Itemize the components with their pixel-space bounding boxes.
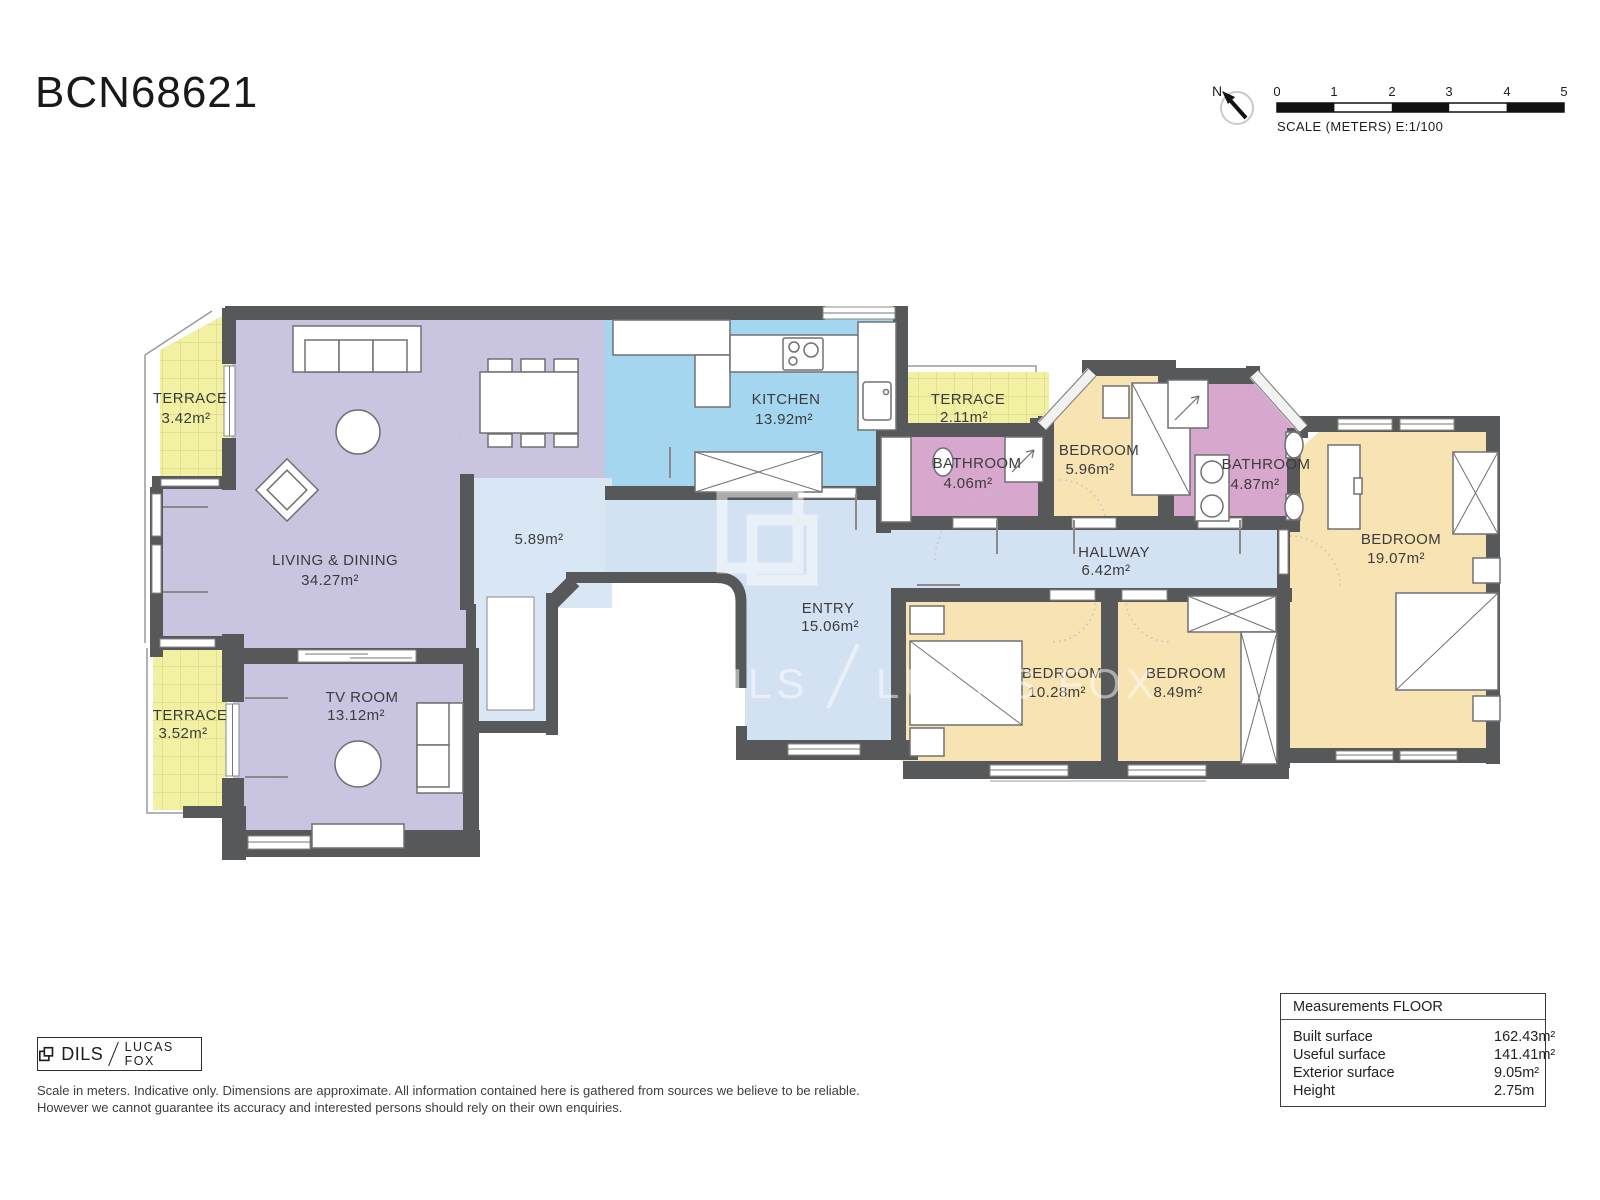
measurement-label: Useful surface [1293, 1047, 1386, 1063]
floorplan-page: BCN68621 [0, 0, 1600, 1200]
label-bedroom596-area: 5.96m² [1065, 461, 1114, 478]
label-terrace2-area: 2.11m² [940, 409, 988, 426]
label-tvroom-name: TV ROOM [326, 689, 399, 706]
scale-tick-0: 0 [1273, 84, 1280, 99]
label-bathroom2-name: BATHROOM [1222, 456, 1311, 473]
scale-caption: SCALE (METERS) E:1/100 [1277, 119, 1443, 134]
dils-logo-icon [38, 1045, 55, 1064]
label-hallway-area: 6.42m² [1081, 562, 1130, 579]
measurement-row: Built surface 162.43m² [1293, 1028, 1533, 1046]
watermark-lucasfox: LUCAS FOX [876, 660, 1159, 707]
measurement-row: Exterior surface 9.05m² [1293, 1064, 1533, 1082]
scale-tick-3: 3 [1445, 84, 1452, 99]
sofa-living [293, 326, 421, 372]
measurement-value: 162.43m² [1494, 1028, 1555, 1046]
label-terrace1-name: TERRACE [153, 390, 227, 407]
scale-tick-2: 2 [1388, 84, 1395, 99]
measurement-value: 2.75m [1494, 1082, 1534, 1100]
label-bedroom596-name: BEDROOM [1059, 442, 1139, 459]
label-living-name: LIVING & DINING [272, 552, 398, 569]
label-kitchen-area: 13.92m² [755, 411, 813, 428]
measurement-label: Exterior surface [1293, 1065, 1395, 1081]
north-arrow: N [1212, 83, 1253, 124]
label-tvroom-area: 13.12m² [327, 707, 385, 724]
dining-table [480, 359, 578, 447]
label-bathroom2-area: 4.87m² [1230, 476, 1279, 493]
measurement-label: Built surface [1293, 1029, 1373, 1045]
logo-text-lucasfox: LUCAS FOX [125, 1040, 201, 1068]
logo-text-dils: DILS [61, 1044, 103, 1065]
label-entry-name: ENTRY [802, 600, 855, 617]
label-terrace3-area: 3.52m² [158, 725, 207, 742]
scale-tick-4: 4 [1503, 84, 1510, 99]
coffee-table-tvroom [335, 741, 381, 787]
label-hallway-name: HALLWAY [1078, 544, 1150, 561]
north-label: N [1212, 83, 1222, 99]
disclaimer-line-2: However we cannot guarantee its accuracy… [37, 1099, 860, 1116]
label-terrace2-name: TERRACE [931, 391, 1005, 408]
measurements-title: Measurements FLOOR [1281, 994, 1545, 1020]
label-terrace3-name: TERRACE [153, 707, 227, 724]
watermark-dils: DILS [696, 660, 809, 707]
label-terrace1-area: 3.42m² [161, 410, 210, 427]
tv-unit [312, 824, 404, 848]
page-title: BCN68621 [35, 68, 258, 118]
scale-bar: 0 1 2 3 4 5 SCALE (METERS) E:1/100 [1273, 84, 1567, 134]
label-kitchen-name: KITCHEN [752, 391, 821, 408]
agency-logo: DILS LUCAS FOX [37, 1037, 202, 1071]
measurement-label: Height [1293, 1083, 1335, 1099]
measurement-value: 9.05m² [1494, 1064, 1539, 1082]
coffee-table-living [336, 410, 380, 454]
label-living-area: 34.27m² [301, 572, 359, 589]
scale-tick-1: 1 [1330, 84, 1337, 99]
logo-slash [108, 1042, 119, 1067]
measurements-table: Measurements FLOOR Built surface 162.43m… [1280, 993, 1546, 1107]
label-bathroom1-area: 4.06m² [943, 475, 992, 492]
measurement-value: 141.41m² [1494, 1046, 1555, 1064]
label-bedroom19-name: BEDROOM [1361, 531, 1441, 548]
measurement-row: Height 2.75m [1293, 1082, 1533, 1100]
sofa-tvroom [417, 703, 463, 793]
label-bedroom849-area: 8.49m² [1153, 684, 1202, 701]
label-589-area: 5.89m² [514, 531, 563, 548]
label-entry-area: 15.06m² [801, 618, 859, 635]
label-bedroom19-area: 19.07m² [1367, 550, 1425, 567]
measurement-row: Useful surface 141.41m² [1293, 1046, 1533, 1064]
stove-icon [783, 338, 823, 370]
label-bathroom1-name: BATHROOM [933, 455, 1022, 472]
disclaimer-line-1: Scale in meters. Indicative only. Dimens… [37, 1082, 860, 1099]
disclaimer: Scale in meters. Indicative only. Dimens… [37, 1082, 860, 1116]
scale-tick-5: 5 [1560, 84, 1567, 99]
